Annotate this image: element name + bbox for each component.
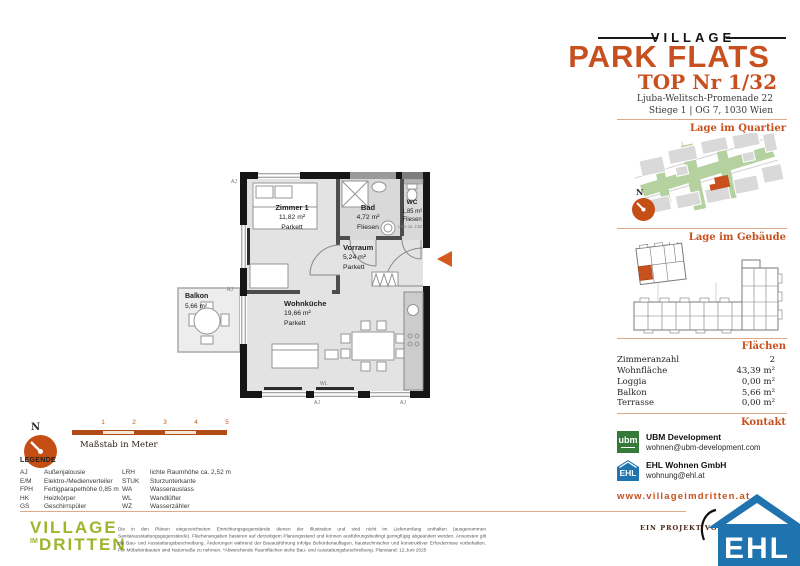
room-height-note: LRH ca. 2,52 <box>398 224 418 231</box>
table-row: Zimmeranzahl2 <box>617 355 775 365</box>
legend-item: HKHeizkörper <box>20 495 75 502</box>
room-area: 19,66 m² <box>284 309 354 319</box>
scale-tick: 1 <box>98 419 108 426</box>
scale-bar <box>72 430 227 435</box>
room-vorraum: Vorraum 5,24 m² Parkett <box>343 243 407 273</box>
legend-item: WLWandlüfter <box>122 495 181 502</box>
table-row: Wohnfläche43,39 m² <box>617 366 775 376</box>
compass-north-label: N <box>636 187 643 197</box>
legend-item: WAWasserauslass <box>122 486 194 493</box>
address-line-2: Stiege 1 | OG 7, 1030 Wien <box>649 106 773 116</box>
legend-item: STUKSturzunterkante <box>122 478 196 485</box>
room-floor: Fliesen <box>398 216 426 224</box>
ehl-name: EHL Wohnen GmbH <box>646 460 726 470</box>
area-label: Wohnfläche <box>617 366 667 376</box>
plan-code-wl: WL <box>320 381 328 387</box>
wardrobe <box>372 272 398 286</box>
room-floor: Parkett <box>343 263 407 273</box>
coffee-table <box>325 350 338 359</box>
room-area: 5,24 m² <box>343 253 407 263</box>
area-value: 5,66 m² <box>742 388 775 398</box>
ubm-logo: ubm <box>617 431 639 453</box>
legend-item: E/MElektro-/Medienverteiler <box>20 478 113 485</box>
room-floor: Parkett <box>262 223 322 233</box>
entrance-arrow-icon <box>437 251 452 267</box>
room-floor: Fliesen <box>341 223 395 233</box>
legend-item: FPHFertigparapethöhe 0,85 m <box>20 486 119 493</box>
divider <box>617 338 787 339</box>
section-kontakt: Kontakt <box>741 417 786 428</box>
legend-item: GSGeschirrspüler <box>20 503 86 510</box>
dresser <box>250 264 288 288</box>
village-logo-line2: DRITTEN <box>39 536 127 553</box>
plan-code-aj: AJ <box>227 287 233 293</box>
table-row: Balkon5,66 m² <box>617 388 775 398</box>
room-name: Balkon <box>185 292 235 302</box>
section-flaechen: Flächen <box>742 341 786 352</box>
divider <box>617 228 787 229</box>
scale-tick: 4 <box>191 419 201 426</box>
area-label: Balkon <box>617 388 647 398</box>
sofa <box>272 344 318 368</box>
room-balkon: Balkon 5,66 m² <box>185 292 235 312</box>
table-row: Terrasse0,00 m² <box>617 398 775 408</box>
room-name: Bad <box>341 203 395 213</box>
room-floor: Parkett <box>284 319 354 329</box>
ehl-logo-large-text: EHL <box>724 532 790 565</box>
room-area: 5,66 m² <box>185 302 235 312</box>
compass-icon <box>632 198 655 221</box>
room-wc: WC 1,85 m² Fliesen LRH ca. 2,52 <box>398 198 426 234</box>
address-line-1: Ljuba-Welitsch-Promenade 22 <box>637 94 773 104</box>
room-wohnkueche: Wohnküche 19,66 m² Parkett <box>284 299 354 329</box>
scale-label: Maßstab in Meter <box>80 440 158 450</box>
room-name: Zimmer 1 <box>262 203 322 213</box>
area-value: 2 <box>770 355 775 365</box>
divider <box>617 119 787 120</box>
unit-title: TOP Nr 1/32 <box>638 70 777 94</box>
area-value: 0,00 m² <box>742 398 775 408</box>
room-name: Wohnküche <box>284 299 354 309</box>
village-logo-line1: VILLAGE <box>30 519 127 536</box>
legend-item: WZWasserzähler <box>122 503 190 510</box>
footer-divider <box>20 511 686 512</box>
scale-tick: 5 <box>222 419 232 426</box>
building-plan <box>630 242 788 334</box>
ehl-logo-text: EHL <box>620 468 637 478</box>
disclaimer: Die in den Plänen eingezeichneten Einric… <box>118 526 488 562</box>
bathroom-sink <box>372 182 386 192</box>
ubm-logo-text: ubm <box>619 436 638 445</box>
village-im-dritten-logo: VILLAGE IM DRITTEN <box>30 519 127 553</box>
kitchen-counter <box>404 292 423 390</box>
room-name: Vorraum <box>343 243 407 253</box>
area-value: 43,39 m² <box>736 366 775 376</box>
ehl-logo: EHL <box>617 459 639 481</box>
room-area: 11,82 m² <box>262 213 322 223</box>
table-row: Loggia0,00 m² <box>617 377 775 387</box>
room-zimmer1: Zimmer 1 11,82 m² Parkett <box>262 203 322 233</box>
plan-code-aj: AJ <box>231 179 237 185</box>
ehl-email[interactable]: wohnung@ehl.at <box>646 471 705 480</box>
ubm-name: UBM Development <box>646 432 721 442</box>
room-name: WC <box>398 198 426 208</box>
room-area: 4,72 m² <box>341 213 395 223</box>
highlighted-unit <box>638 265 653 280</box>
area-label: Zimmeranzahl <box>617 355 679 365</box>
disclaimer-text: Die in den Plänen eingezeichneten Einric… <box>118 526 486 554</box>
legend-title: LEGENDE <box>20 457 56 464</box>
area-label: Loggia <box>617 377 646 387</box>
plan-code-aj: AJ <box>400 400 406 406</box>
room-bad: Bad 4,72 m² Fliesen <box>341 203 395 233</box>
plan-code-aj: AJ <box>314 400 320 406</box>
ubm-email[interactable]: wohnen@ubm-development.com <box>646 443 761 452</box>
divider <box>617 413 787 414</box>
floorplan-sheet: VILLAGE PARK FLATS TOP Nr 1/32 Ljuba-Wel… <box>0 0 800 566</box>
compass-north-label: N <box>31 422 40 433</box>
room-area: 1,85 m² <box>398 208 426 216</box>
ehl-logo-large: EHL <box>690 486 800 566</box>
area-label: Terrasse <box>617 398 654 408</box>
brand-park-flats: PARK FLATS <box>568 41 770 72</box>
scale-tick: 3 <box>160 419 170 426</box>
area-value: 0,00 m² <box>742 377 775 387</box>
scale-tick: 2 <box>129 419 139 426</box>
legend-item: LRHlichte Raumhöhe ca. 2,52 m <box>122 469 231 476</box>
legend-item: AJAußenjalousie <box>20 469 85 476</box>
village-logo-im: IM <box>30 539 39 546</box>
